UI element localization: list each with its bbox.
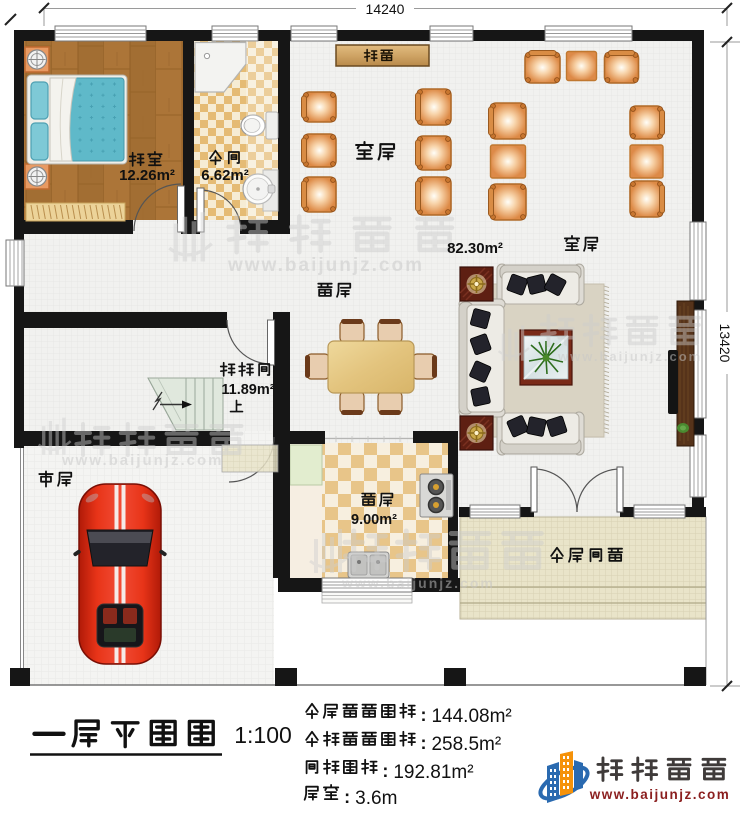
- svg-text:258.5m²: 258.5m²: [431, 734, 501, 755]
- svg-text::: :: [420, 733, 426, 753]
- svg-text:www.baijunjz.com: www.baijunjz.com: [589, 787, 731, 802]
- svg-text:14240: 14240: [366, 1, 405, 17]
- svg-text::: :: [382, 761, 388, 781]
- svg-text:11.89m²: 11.89m²: [221, 382, 274, 398]
- svg-text::: :: [344, 787, 350, 807]
- svg-text:6.62m²: 6.62m²: [201, 167, 249, 184]
- svg-text:12.26m²: 12.26m²: [119, 167, 175, 184]
- svg-text:144.08m²: 144.08m²: [431, 706, 511, 727]
- svg-text:1:100: 1:100: [234, 722, 292, 748]
- svg-text:3.6m: 3.6m: [355, 788, 397, 809]
- svg-text:13420: 13420: [717, 324, 733, 363]
- svg-text:www.baijunjz.com: www.baijunjz.com: [227, 255, 424, 276]
- svg-text:9.00m²: 9.00m²: [351, 512, 397, 528]
- svg-text:192.81m²: 192.81m²: [393, 762, 473, 783]
- svg-text:82.30m²: 82.30m²: [447, 240, 503, 257]
- svg-text:www.baijunjz.com: www.baijunjz.com: [61, 452, 223, 469]
- svg-text:www.baijunjz.com: www.baijunjz.com: [557, 349, 702, 364]
- svg-text::: :: [420, 705, 426, 725]
- svg-text:www.baijunjz.com: www.baijunjz.com: [341, 575, 495, 591]
